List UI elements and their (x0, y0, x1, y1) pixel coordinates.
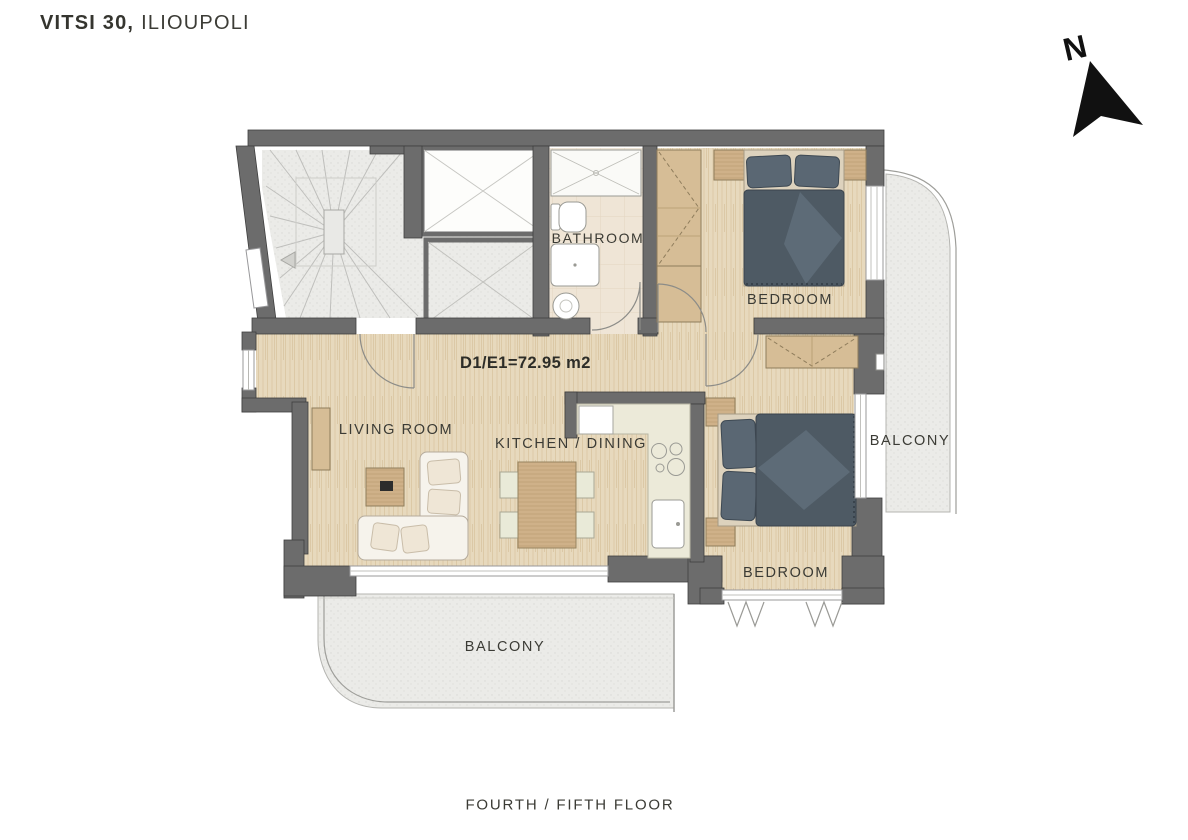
room-label-bathroom: BATHROOM (552, 230, 645, 246)
nightstand (714, 150, 744, 180)
room-label-bedroom-top: BEDROOM (747, 292, 833, 308)
elevator-shaft (422, 148, 548, 234)
light-shaft (426, 240, 540, 324)
floorplan-canvas: N VITSI 30,ILIOUPOLI BATHROOM BEDROOM D1… (0, 0, 1188, 840)
room-label-living-room: LIVING ROOM (339, 422, 453, 438)
room-label-bedroom-bottom: BEDROOM (743, 565, 829, 581)
project-location: ILIOUPOLI (141, 12, 250, 34)
hall-closet (312, 408, 330, 470)
bed-double-top (744, 150, 844, 286)
balcony-right-slab (884, 170, 956, 514)
floorplan-drawing: N (0, 0, 1188, 840)
project-name: VITSI 30, (40, 12, 134, 34)
dining-table (518, 462, 576, 548)
tv (380, 481, 393, 491)
north-arrow-icon (1073, 61, 1143, 137)
floor-level-label: FOURTH / FIFTH FLOOR (465, 797, 674, 814)
page-title: VITSI 30,ILIOUPOLI (40, 12, 250, 35)
room-label-balcony-right: BALCONY (870, 433, 951, 449)
bed-double-bottom (718, 414, 856, 526)
north-label: N (1060, 28, 1091, 68)
room-label-kitchen-dining: KITCHEN / DINING (495, 436, 647, 452)
room-label-balcony-bottom: BALCONY (465, 639, 546, 655)
north-arrow: N (1060, 28, 1143, 137)
shutter-marks (728, 602, 842, 626)
unit-area-label: D1/E1=72.95 m2 (460, 354, 591, 373)
balcony-door-threshold (876, 354, 884, 370)
fridge (579, 406, 613, 434)
